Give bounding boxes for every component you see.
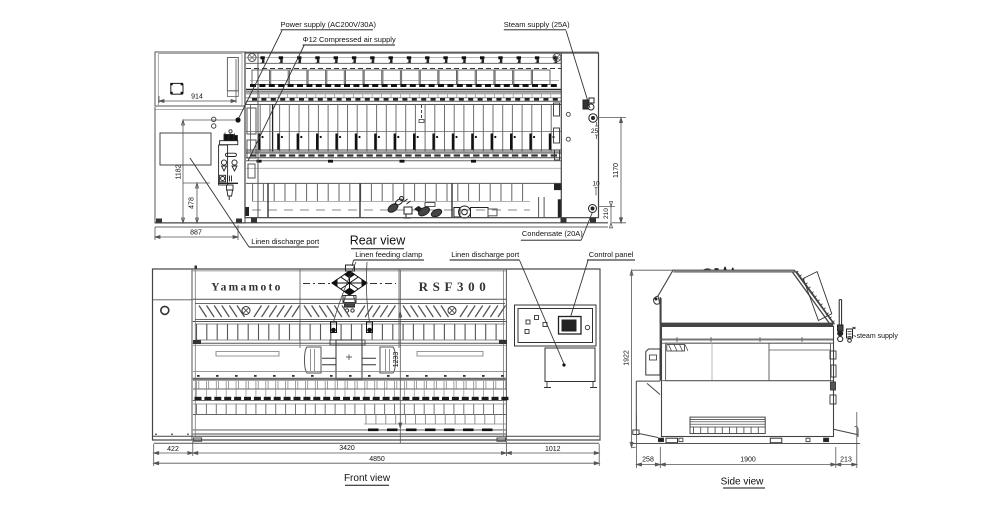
svg-text:Linen discharge port: Linen discharge port (451, 250, 520, 259)
svg-text:Condensate (20A): Condensate (20A) (522, 229, 583, 238)
svg-text:258: 258 (642, 457, 654, 464)
svg-text:Control panel: Control panel (589, 250, 634, 259)
svg-text:Φ12 Compressed air supply: Φ12 Compressed air supply (303, 35, 396, 44)
svg-text:Linen feeding clamp: Linen feeding clamp (355, 250, 422, 259)
svg-text:Steam supply (25A): Steam supply (25A) (504, 20, 570, 29)
svg-text:478: 478 (189, 197, 196, 209)
svg-text:RSF300: RSF300 (419, 279, 491, 294)
svg-text:213: 213 (840, 457, 852, 464)
svg-text:1012: 1012 (545, 446, 561, 453)
svg-text:914: 914 (191, 94, 203, 101)
svg-text:Front view: Front view (344, 473, 391, 484)
svg-text:210: 210 (603, 208, 610, 219)
svg-text:steam supply: steam supply (857, 333, 899, 340)
svg-text:1900: 1900 (740, 457, 756, 464)
svg-text:Rear view: Rear view (350, 233, 407, 247)
svg-text:Linen discharge port: Linen discharge port (251, 237, 320, 246)
svg-text:1922: 1922 (624, 350, 631, 366)
svg-text:1170: 1170 (613, 163, 620, 178)
svg-text:1182: 1182 (176, 164, 183, 179)
svg-text:10: 10 (592, 180, 600, 187)
svg-text:1233: 1233 (393, 352, 400, 368)
svg-text:Power supply (AC200V/30A): Power supply (AC200V/30A) (281, 20, 377, 29)
svg-text:422: 422 (167, 446, 179, 453)
svg-text:4850: 4850 (369, 456, 385, 463)
svg-text:887: 887 (190, 230, 202, 237)
svg-text:25: 25 (591, 128, 599, 135)
svg-text:Side view: Side view (721, 477, 765, 488)
svg-text:3420: 3420 (339, 445, 355, 452)
svg-text:Yamamoto: Yamamoto (211, 281, 282, 293)
